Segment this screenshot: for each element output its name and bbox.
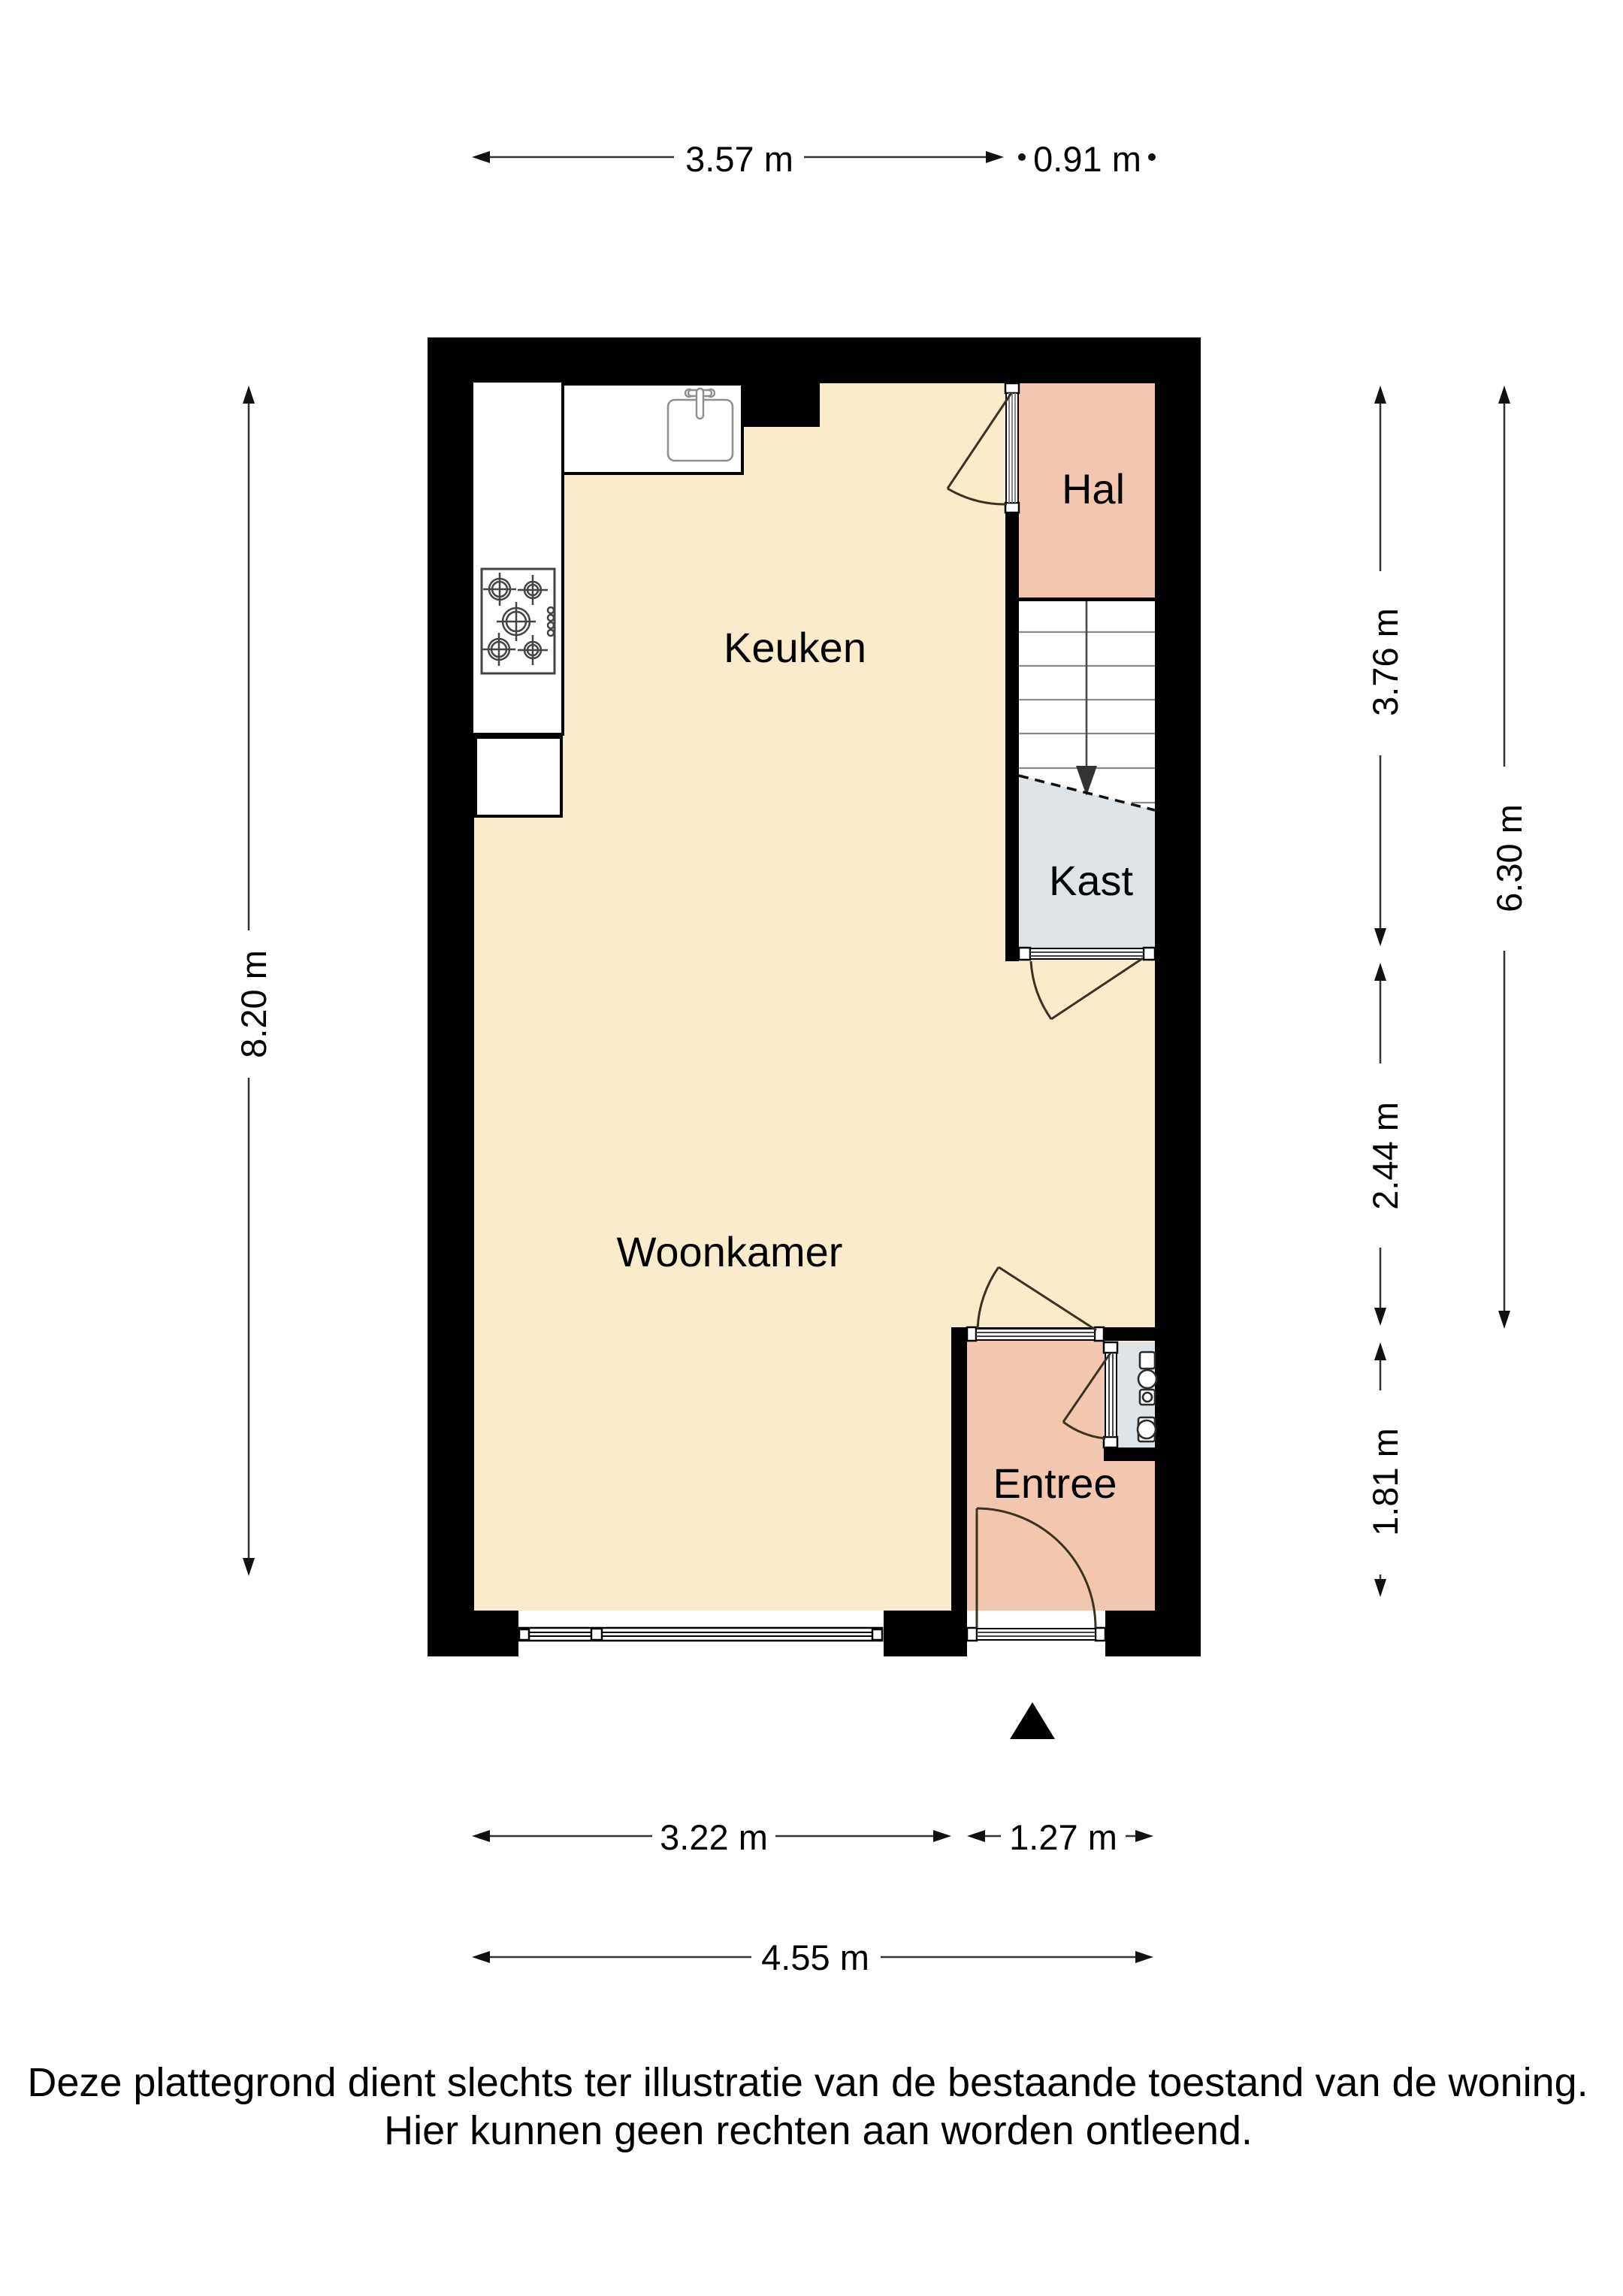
svg-text:3.22 m: 3.22 m xyxy=(660,1817,768,1857)
svg-text:2.44 m: 2.44 m xyxy=(1365,1102,1405,1210)
svg-text:1.27 m: 1.27 m xyxy=(1009,1817,1117,1857)
svg-text:Entree: Entree xyxy=(993,1460,1117,1507)
svg-text:Hal: Hal xyxy=(1062,465,1125,513)
svg-text:Kast: Kast xyxy=(1049,857,1133,904)
svg-text:1.81 m: 1.81 m xyxy=(1365,1428,1405,1536)
svg-text:Hier kunnen geen rechten aan w: Hier kunnen geen rechten aan worden ontl… xyxy=(384,2108,1253,2153)
svg-text:Woonkamer: Woonkamer xyxy=(617,1228,843,1275)
svg-text:6.30 m: 6.30 m xyxy=(1489,804,1529,912)
svg-text:3.57 m: 3.57 m xyxy=(685,139,793,179)
svg-text:8.20 m: 8.20 m xyxy=(234,950,274,1058)
svg-text:Deze plattegrond dient slechts: Deze plattegrond dient slechts ter illus… xyxy=(27,2060,1588,2105)
svg-text:4.55 m: 4.55 m xyxy=(761,1938,869,1977)
svg-text:Keuken: Keuken xyxy=(724,624,866,671)
svg-text:3.76 m: 3.76 m xyxy=(1365,608,1405,716)
svg-text:0.91 m: 0.91 m xyxy=(1033,139,1141,179)
